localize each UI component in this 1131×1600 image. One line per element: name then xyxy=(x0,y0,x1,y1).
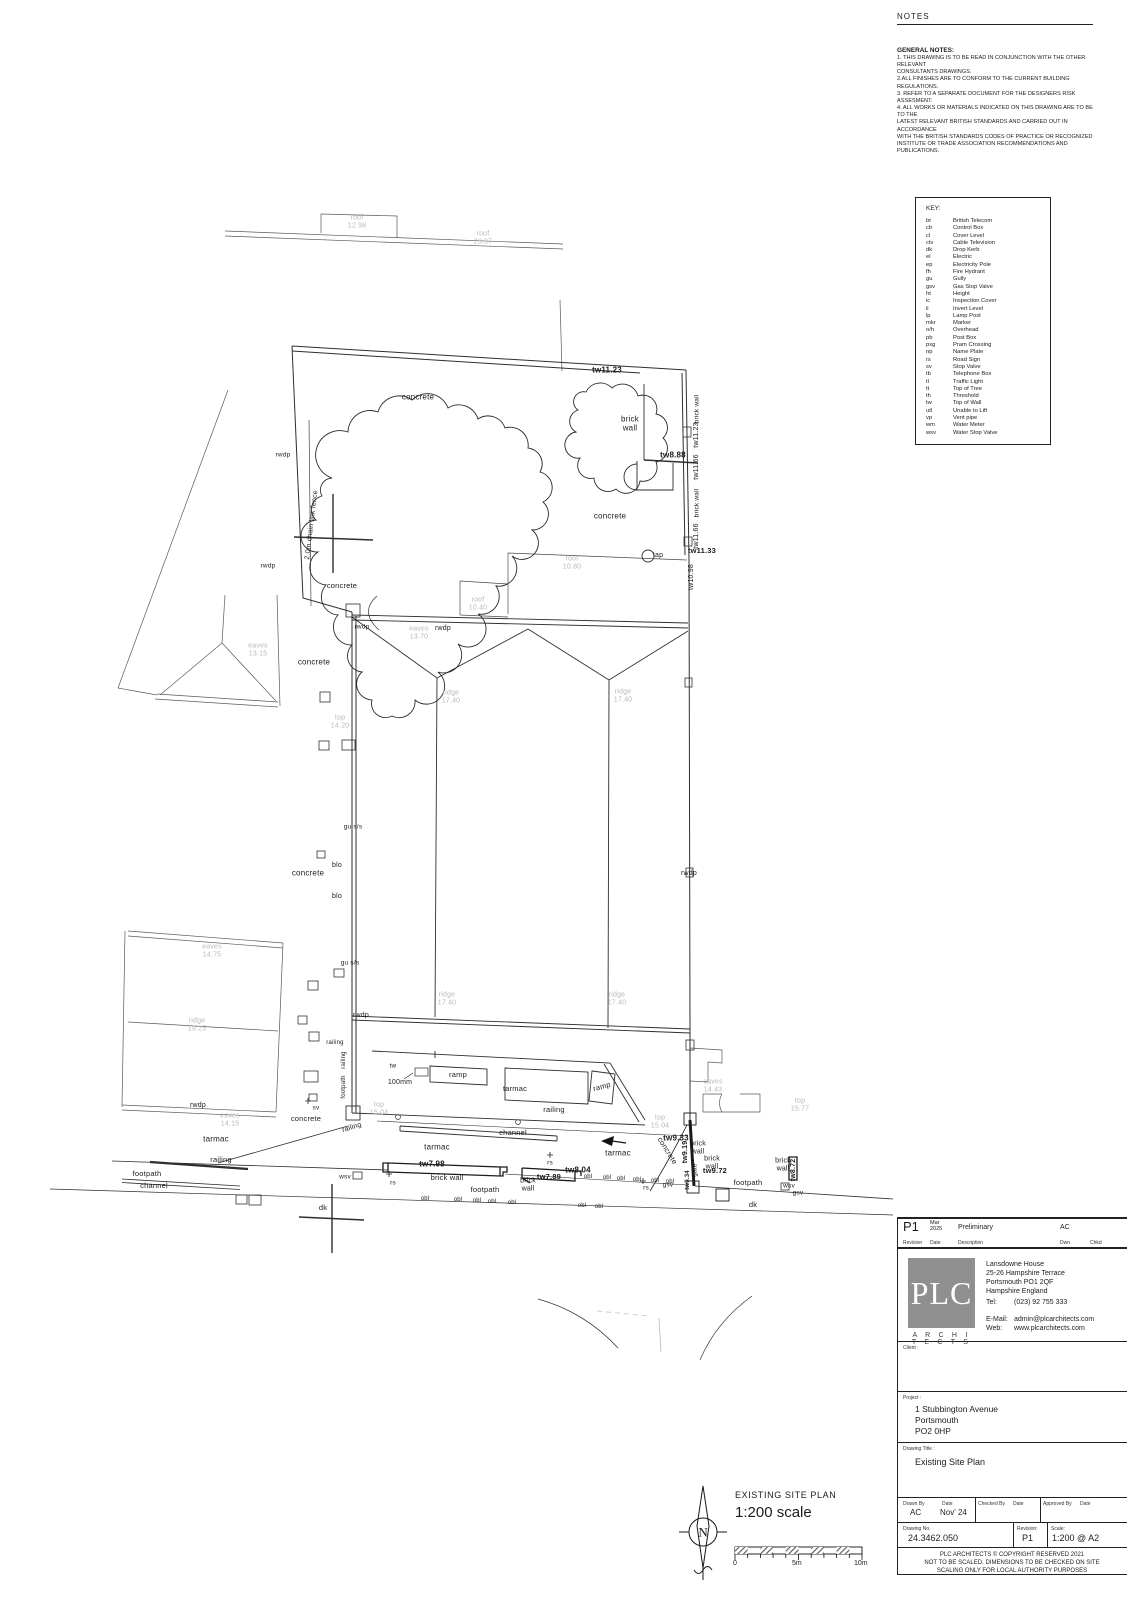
plan-label: ridge 17.40 xyxy=(614,688,633,703)
flow-arrow xyxy=(601,1136,626,1146)
tb-rule xyxy=(897,1341,1127,1342)
key-row: lpLamp Post xyxy=(916,313,1050,320)
plan-label: tw11.66 xyxy=(693,454,701,479)
text-line: CONSULTANTS DRAWINGS. xyxy=(897,69,1093,76)
key-term: Cable Television xyxy=(953,240,995,247)
key-term: Traffic Light xyxy=(953,379,983,386)
plan-label: tarmac xyxy=(503,1085,527,1093)
checked-by-label: Checked By xyxy=(978,1501,1005,1507)
key-row: mkrMarker xyxy=(916,320,1050,327)
drawing-no-value: 24.3462.050 xyxy=(908,1533,958,1543)
plan-label: obl xyxy=(603,1175,612,1181)
rev-h-description: Description xyxy=(958,1240,983,1246)
road-lines xyxy=(50,1126,893,1360)
plan-label: gate xyxy=(691,1163,698,1176)
key-row: ttTop of Tree xyxy=(916,386,1050,393)
date-label-3: Date xyxy=(1080,1501,1091,1507)
key-title: KEY: xyxy=(926,205,1050,212)
scalebar-end: 10m xyxy=(854,1560,868,1567)
tb-rule xyxy=(897,1522,1127,1523)
key-abbr: tt xyxy=(926,386,953,393)
key-row: o/hOverhead xyxy=(916,327,1050,334)
key-row: gsvGas Stop Valve xyxy=(916,284,1050,291)
drawing-title-label: Drawing Title : xyxy=(903,1446,935,1452)
key-row: fhFire Hydrant xyxy=(916,269,1050,276)
plan-label: eaves 14.15 xyxy=(220,1112,240,1127)
key-abbr: o/h xyxy=(926,327,953,334)
key-row: guGully xyxy=(916,276,1050,283)
key-row: npName Plate xyxy=(916,349,1050,356)
plan-label: top 15.04 xyxy=(651,1114,670,1129)
plan-label: roof 10.40 xyxy=(469,596,488,611)
plan-label: roof 23.97 xyxy=(474,230,493,245)
plan-label: blo xyxy=(332,893,342,901)
plc-logo-text: PLC xyxy=(911,1275,973,1312)
text-line: WITH THE BRITISH STANDARDS CODES OF PRAC… xyxy=(897,134,1093,141)
drawing-sheet: N concreteconcreteconcreteconcreteconcre… xyxy=(0,0,1131,1600)
tel-label: Tel: xyxy=(986,1299,997,1306)
date-label-1: Date xyxy=(942,1501,953,1507)
text-line: LATEST RELEVANT BRITISH STANDARDS AND CA… xyxy=(897,119,1093,133)
plan-label: dk xyxy=(319,1204,327,1212)
text-line: 3. REFER TO A SEPARATE DOCUMENT FOR THE … xyxy=(897,91,1093,105)
plan-scale-text: 1:200 scale xyxy=(735,1504,812,1521)
plan-label: obl xyxy=(584,1174,593,1180)
plan-label: tw10.98 xyxy=(688,564,696,590)
plan-label: eaves 14.75 xyxy=(202,943,222,958)
drawing-no-label: Drawing No. xyxy=(903,1526,931,1532)
plan-label: tw11.23 xyxy=(592,367,622,376)
scale-value: 1:200 @ A2 xyxy=(1052,1533,1099,1543)
general-notes-body: 1. THIS DRAWING IS TO BE READ IN CONJUNC… xyxy=(897,55,1093,155)
key-list: btBritish TelecomcbControl BoxclCover Le… xyxy=(916,218,1050,437)
rev-date: Mar 2025 xyxy=(930,1220,942,1232)
plan-label: wsv xyxy=(339,1173,351,1180)
plan-label: tw9.72 xyxy=(703,1167,727,1175)
tb-rule xyxy=(897,1247,1127,1249)
key-row: clCover Level xyxy=(916,233,1050,240)
notes-title: NOTES xyxy=(897,12,1093,21)
plan-label: brick wall xyxy=(520,1177,536,1192)
rev-h-chkd: Chkd xyxy=(1090,1240,1102,1246)
plan-label: wsv xyxy=(783,1182,795,1189)
plan-label: ridge 19.25 xyxy=(188,1017,207,1032)
plan-label: roof 12.98 xyxy=(348,214,367,229)
date-value: Nov' 24 xyxy=(940,1508,967,1517)
plan-label: channel xyxy=(140,1182,168,1190)
plan-label: tarmac xyxy=(424,1144,450,1153)
tb-divider xyxy=(975,1497,976,1522)
drawn-by-value: AC xyxy=(910,1508,921,1517)
practice-address: Lansdowne House25-26 Hampshire TerracePo… xyxy=(986,1260,1065,1296)
plc-logo-subtext: A R C H I T E C T S xyxy=(908,1332,975,1346)
key-abbr: vp xyxy=(926,415,953,422)
key-abbr: tl xyxy=(926,379,953,386)
plan-label: top 14.20 xyxy=(331,714,350,729)
plan-label: footpath xyxy=(734,1179,763,1187)
text-line: Portsmouth xyxy=(915,1415,998,1426)
key-abbr: pb xyxy=(926,335,953,342)
scale-label: Scale: xyxy=(1051,1526,1065,1532)
plan-label: tarmac xyxy=(203,1136,229,1145)
key-term: Top of Wall xyxy=(953,400,981,407)
plan-label: tw9.34 xyxy=(685,1170,691,1190)
plan-label: rs xyxy=(643,1184,649,1191)
plan-label: ridge 17.40 xyxy=(438,991,457,1006)
road-marking xyxy=(659,1318,661,1352)
plan-label: obl xyxy=(508,1200,517,1206)
text-line: INSTITUTE OR TRADE ASSOCIATION RECOMMEND… xyxy=(897,141,1093,155)
plan-label: gu s/s xyxy=(344,823,363,830)
key-term: Pram Crossing xyxy=(953,342,991,349)
tb-rule xyxy=(897,1497,1127,1498)
text-line: 25-26 Hampshire Terrace xyxy=(986,1269,1065,1278)
key-row: wmWater Meter xyxy=(916,422,1050,429)
key-abbr: il xyxy=(926,306,953,313)
key-panel: KEY: btBritish TelecomcbControl BoxclCov… xyxy=(915,197,1051,445)
plan-label: sv xyxy=(313,1104,320,1111)
tb-divider xyxy=(1040,1497,1041,1522)
rev-code: P1 xyxy=(903,1219,919,1234)
key-term: Overhead xyxy=(953,327,978,334)
project-label: Project : xyxy=(903,1395,921,1401)
plan-label: rwdp xyxy=(681,870,697,878)
drawing-title: Existing Site Plan xyxy=(915,1457,985,1467)
tb-rule xyxy=(897,1547,1127,1548)
plan-label: rwdp xyxy=(435,625,451,633)
key-abbr: cb xyxy=(926,225,953,232)
key-row: svStop Valve xyxy=(916,364,1050,371)
plan-label: footpath xyxy=(471,1186,500,1194)
plan-label: 100mm xyxy=(388,1079,412,1087)
plan-label: tw11.23 xyxy=(693,422,701,447)
plan-label: obl xyxy=(595,1204,604,1210)
plan-label: rs xyxy=(547,1159,553,1166)
key-row: dkDrop Kerb xyxy=(916,247,1050,254)
main-building xyxy=(346,596,690,1033)
key-term: Control Box xyxy=(953,225,983,232)
key-term: Road Sign xyxy=(953,357,980,364)
plan-label: concrete xyxy=(327,582,357,590)
key-abbr: ep xyxy=(926,262,953,269)
plan-label: brick wall xyxy=(431,1174,464,1182)
key-term: Threshold xyxy=(953,393,979,400)
key-row: ctvCable Television xyxy=(916,240,1050,247)
tb-rule xyxy=(897,1574,1127,1575)
key-row: elElectric xyxy=(916,254,1050,261)
plc-logo: PLC xyxy=(908,1258,975,1328)
road-centreline xyxy=(597,1311,650,1316)
plan-label: footpath xyxy=(341,1075,347,1098)
key-row: vpVent pipe xyxy=(916,415,1050,422)
key-row: pxgPram Crossing xyxy=(916,342,1050,349)
key-term: Unable to Lift xyxy=(953,408,987,415)
text-line: 1. THIS DRAWING IS TO BE READ IN CONJUNC… xyxy=(897,55,1093,69)
web-value: www.plcarchitects.com xyxy=(1014,1325,1085,1332)
notes-rule xyxy=(897,24,1093,25)
key-row: htHeight xyxy=(916,291,1050,298)
plan-label: rwdp xyxy=(261,562,276,569)
text-line: Lansdowne House xyxy=(986,1260,1065,1269)
key-abbr: th xyxy=(926,393,953,400)
tb-rule xyxy=(897,1442,1127,1443)
plan-label: tw7.89 xyxy=(537,1173,561,1181)
key-term: Gully xyxy=(953,276,966,283)
text-line: 4. ALL WORKS OR MATERIALS INDICATED ON T… xyxy=(897,105,1093,119)
key-term: Height xyxy=(953,291,970,298)
key-row: icInspection Cover xyxy=(916,298,1050,305)
key-row: ilInvert Level xyxy=(916,306,1050,313)
key-abbr: lp xyxy=(926,313,953,320)
rev-h-revision: Revision xyxy=(903,1240,922,1246)
key-row: thThreshold xyxy=(916,393,1050,400)
rev-h-dwn: Dwn xyxy=(1060,1240,1070,1246)
text-line: PO2 0HP xyxy=(915,1426,998,1437)
key-term: Electricity Pole xyxy=(953,262,991,269)
plan-label: brick wall xyxy=(621,415,639,432)
text-line: Hampshire England xyxy=(986,1287,1065,1296)
plan-label: gsv xyxy=(793,1189,804,1196)
revision-value: P1 xyxy=(1022,1533,1033,1543)
tb-left-border xyxy=(897,1217,898,1575)
email-value: admin@plcarchitects.com xyxy=(1014,1316,1094,1323)
key-term: Stop Valve xyxy=(953,364,981,371)
plan-label: eaves 14.43 xyxy=(703,1078,723,1093)
plan-label: brick wall xyxy=(775,1157,791,1172)
plan-label: obl xyxy=(473,1198,482,1204)
plan-label: rwdp xyxy=(276,451,291,458)
neighbour-buildings xyxy=(118,214,760,1117)
plan-label: tw11.33 xyxy=(688,547,716,555)
key-abbr: bt xyxy=(926,218,953,225)
date-label-2: Date xyxy=(1013,1501,1024,1507)
tb-rule xyxy=(897,1217,1127,1219)
revision-label: Revision: xyxy=(1017,1526,1038,1532)
plan-label: tw11.66 xyxy=(693,523,701,548)
plan-label: footpath xyxy=(133,1170,162,1178)
key-abbr: utl xyxy=(926,408,953,415)
key-term: Marker xyxy=(953,320,971,327)
plan-label: concrete xyxy=(594,513,626,522)
rev-desc: Preliminary xyxy=(958,1224,993,1231)
rev-dwn: AC xyxy=(1060,1224,1070,1231)
text-line: 1 Stubbington Avenue xyxy=(915,1404,998,1415)
drawn-by-label: Drawn By xyxy=(903,1501,925,1507)
plan-label: brick wall xyxy=(693,395,700,424)
plan-label: concrete xyxy=(298,659,330,668)
text-line: PLC ARCHITECTS © COPYRIGHT RESERVED 2021 xyxy=(897,1551,1127,1559)
key-term: British Telecom xyxy=(953,218,992,225)
key-row: wsvWater Stop Valve xyxy=(916,430,1050,437)
svg-text:N: N xyxy=(698,1525,708,1540)
plan-label: ridge 17.40 xyxy=(608,991,627,1006)
key-abbr: cl xyxy=(926,233,953,240)
key-row: pbPost Box xyxy=(916,335,1050,342)
key-abbr: fh xyxy=(926,269,953,276)
plan-label: roof 10.80 xyxy=(563,555,582,570)
plan-label: obl xyxy=(454,1197,463,1203)
key-term: Lamp Post xyxy=(953,313,981,320)
plan-label: tw8.88 xyxy=(660,452,686,461)
plan-label: dk xyxy=(749,1201,757,1209)
key-row: tlTraffic Light xyxy=(916,379,1050,386)
key-abbr: ctv xyxy=(926,240,953,247)
key-abbr: mkr xyxy=(926,320,953,327)
key-term: Drop Kerb xyxy=(953,247,979,254)
plan-label: brick wall xyxy=(693,489,700,518)
rev-h-date: Date xyxy=(930,1240,941,1246)
plan-label: tw xyxy=(390,1062,397,1069)
plan-label: obl xyxy=(666,1179,675,1185)
key-term: Fire Hydrant xyxy=(953,269,985,276)
general-notes-heading: GENERAL NOTES: xyxy=(897,47,1093,54)
plan-label: obl xyxy=(488,1199,497,1205)
plan-label: tw7.98 xyxy=(419,1161,445,1170)
plan-label: blo xyxy=(332,862,342,870)
text-line: NOT TO BE SCALED. DIMENSIONS TO BE CHECK… xyxy=(897,1559,1127,1567)
key-abbr: gsv xyxy=(926,284,953,291)
key-abbr: wm xyxy=(926,422,953,429)
key-abbr: dk xyxy=(926,247,953,254)
plan-label: tw8.72 xyxy=(790,1159,798,1182)
key-abbr: wsv xyxy=(926,430,953,437)
plan-label: eaves 13.70 xyxy=(409,625,429,640)
plan-label: brick wall xyxy=(690,1140,706,1155)
scalebar-zero: 0 xyxy=(733,1560,737,1567)
text-line: Portsmouth PO1 2QF xyxy=(986,1278,1065,1287)
key-abbr: el xyxy=(926,254,953,261)
key-abbr: np xyxy=(926,349,953,356)
key-row: cbControl Box xyxy=(916,225,1050,232)
text-line: 2.ALL FINISHES ARE TO CONFORM TO THE CUR… xyxy=(897,76,1093,90)
key-term: Vent pipe xyxy=(953,415,977,422)
tb-rule xyxy=(897,1391,1127,1392)
email-label: E-Mail: xyxy=(986,1316,1008,1323)
plan-label: rs xyxy=(390,1179,396,1186)
key-row: twTop of Wall xyxy=(916,400,1050,407)
key-abbr: gu xyxy=(926,276,953,283)
key-row: btBritish Telecom xyxy=(916,218,1050,225)
key-term: Electric xyxy=(953,254,972,261)
plan-label: rwdp xyxy=(355,623,370,630)
plan-label: channel xyxy=(499,1129,527,1137)
plan-label: railing xyxy=(543,1106,564,1114)
site-boundary xyxy=(292,346,690,1120)
plan-label: obl xyxy=(617,1176,626,1182)
key-term: Top of Tree xyxy=(953,386,982,393)
key-abbr: sv xyxy=(926,364,953,371)
key-term: Water Meter xyxy=(953,422,985,429)
key-abbr: ht xyxy=(926,291,953,298)
plan-label: gu s/s xyxy=(341,959,360,966)
key-row: tbTelephone Box xyxy=(916,371,1050,378)
notes-panel: NOTES GENERAL NOTES: 1. THIS DRAWING IS … xyxy=(897,12,1093,155)
key-term: Telephone Box xyxy=(953,371,991,378)
scalebar-mid: 5m xyxy=(792,1560,802,1567)
plan-label: obl xyxy=(421,1196,430,1202)
plan-label: obl xyxy=(651,1178,660,1184)
key-abbr: pxg xyxy=(926,342,953,349)
copyright-footer: PLC ARCHITECTS © COPYRIGHT RESERVED 2021… xyxy=(897,1551,1127,1575)
key-term: Gas Stop Valve xyxy=(953,284,993,291)
approved-by-label: Approved By xyxy=(1043,1501,1072,1507)
client-label: Client : xyxy=(903,1345,919,1351)
key-abbr: ic xyxy=(926,298,953,305)
tb-divider xyxy=(1013,1522,1014,1547)
plan-label: railing xyxy=(210,1156,231,1164)
plan-label: ramp xyxy=(449,1071,467,1079)
plan-label: concrete xyxy=(291,1115,321,1123)
plan-label: tw9.19 xyxy=(682,1141,690,1164)
plan-label: tarmac xyxy=(605,1150,631,1159)
north-arrow: N xyxy=(679,1486,727,1580)
plan-label: ridge 17.40 xyxy=(442,689,461,704)
key-abbr: rs xyxy=(926,357,953,364)
plan-label: eaves 13.15 xyxy=(248,642,268,657)
plan-label: tap xyxy=(653,552,663,560)
plan-label: concrete xyxy=(402,394,434,403)
plan-label: obl xyxy=(633,1177,642,1183)
plan-label: rwdp xyxy=(353,1012,369,1020)
plan-label: concrete xyxy=(292,870,324,879)
tb-divider xyxy=(1047,1522,1048,1547)
plan-label: top 15.04 xyxy=(370,1101,389,1116)
plan-label: railing xyxy=(341,1051,347,1068)
web-label: Web: xyxy=(986,1325,1002,1332)
plan-label: top 15.77 xyxy=(791,1097,810,1112)
key-term: Post Box xyxy=(953,335,976,342)
key-abbr: tw xyxy=(926,400,953,407)
plan-label: railing xyxy=(326,1040,343,1046)
plan-label: rwdp xyxy=(190,1102,206,1110)
key-row: rsRoad Sign xyxy=(916,357,1050,364)
tel-value: (023) 92 755 333 xyxy=(1014,1299,1067,1306)
plan-label: obl xyxy=(578,1203,587,1209)
key-row: utlUnable to Lift xyxy=(916,408,1050,415)
key-term: Invert Level xyxy=(953,306,983,313)
key-row: epElectricity Pole xyxy=(916,262,1050,269)
project-address: 1 Stubbington AvenuePortsmouthPO2 0HP xyxy=(915,1404,998,1438)
plan-title: EXISTING SITE PLAN xyxy=(735,1491,836,1501)
key-abbr: tb xyxy=(926,371,953,378)
key-term: Inspection Cover xyxy=(953,298,997,305)
key-term: Name Plate xyxy=(953,349,983,356)
key-term: Cover Level xyxy=(953,233,984,240)
scale-bar xyxy=(735,1547,862,1560)
key-term: Water Stop Valve xyxy=(953,430,997,437)
